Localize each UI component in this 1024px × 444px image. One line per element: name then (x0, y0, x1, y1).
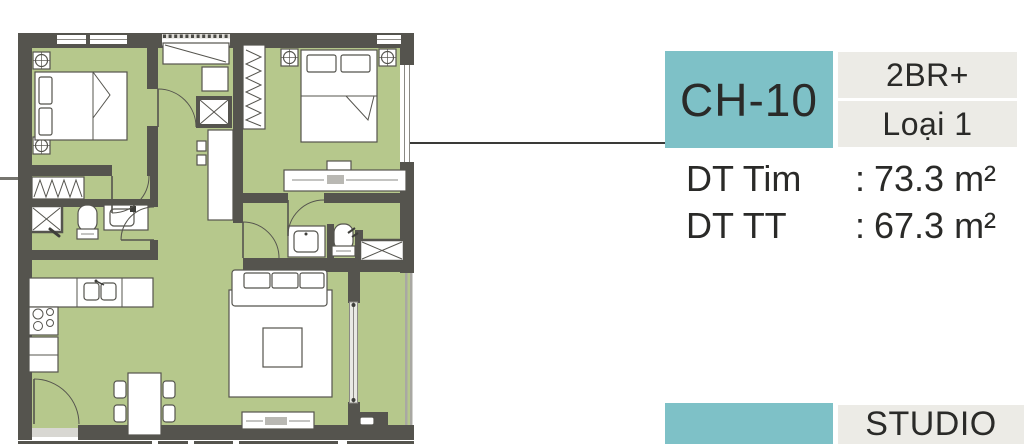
chair (114, 405, 126, 422)
spec-separator: : (846, 205, 874, 247)
cabinet-knob (197, 155, 206, 165)
cabinet (202, 67, 228, 91)
sink-bowl (84, 283, 99, 300)
spec-value: 67.3 m² (874, 205, 1020, 247)
nightstand-lamp-icon (379, 49, 396, 66)
unit-specs: DT Tim : 73.3 m² DT TT : 67.3 m² (686, 155, 1020, 249)
sofa-cushion (244, 273, 270, 288)
toilet (78, 205, 97, 231)
nightstand-lamp-icon (281, 49, 298, 66)
hall-wardrobe (243, 45, 265, 129)
dining-table (128, 373, 161, 435)
pillow (39, 77, 52, 104)
chair (114, 381, 126, 398)
rug-inner-square (263, 328, 302, 367)
unit-type-badge: 2BR+ (838, 52, 1017, 98)
unit-code: CH-10 (680, 73, 818, 127)
spec-label: DT TT (686, 205, 846, 247)
spec-separator: : (846, 158, 874, 200)
brochure-page: CH-10 2BR+ Loại 1 DT Tim : 73.3 m² DT TT… (0, 0, 1024, 444)
next-unit-type-badge: STUDIO (838, 405, 1024, 444)
unit-code-box: CH-10 (665, 51, 833, 148)
pillow (39, 108, 52, 135)
spec-label: DT Tim (686, 158, 846, 200)
cabinet-knob (197, 141, 206, 151)
pillow (307, 55, 336, 72)
window-bedroom2 (400, 61, 414, 166)
floor-drain (360, 417, 374, 425)
chair (163, 405, 175, 422)
floor-plan (0, 0, 430, 444)
sofa-cushion (300, 273, 324, 288)
pillow (341, 55, 370, 72)
spec-value: 73.3 m² (874, 158, 1020, 200)
chair (163, 381, 175, 398)
unit-variant-badge: Loại 1 (838, 101, 1017, 147)
railing (405, 273, 408, 425)
spec-row-gross-area: DT Tim : 73.3 m² (686, 155, 1020, 202)
next-unit-code-box (665, 403, 833, 444)
callout-line (410, 142, 666, 144)
spec-row-net-area: DT TT : 67.3 m² (686, 202, 1020, 249)
entry-threshold (32, 428, 78, 437)
sink-bowl (101, 283, 116, 300)
faucet (305, 233, 308, 236)
sofa-cushion (272, 273, 298, 288)
tall-cabinet (208, 130, 233, 220)
nightstand-lamp-icon (33, 52, 50, 69)
railing (410, 273, 413, 425)
